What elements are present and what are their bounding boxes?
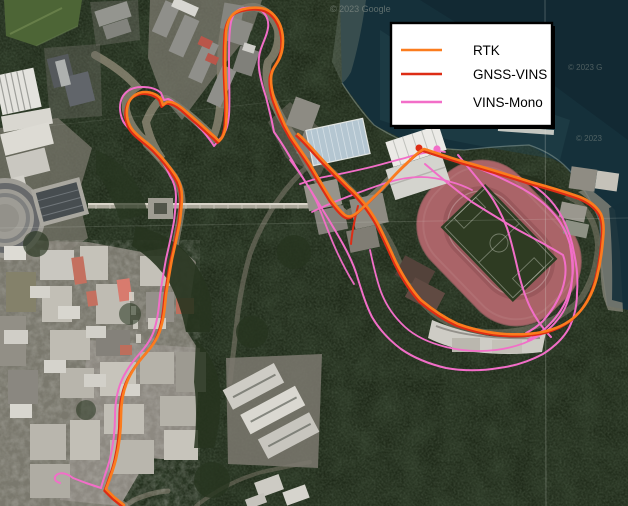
svg-text:GNSS-VINS: GNSS-VINS [473,67,547,82]
svg-text:© 2023 G: © 2023 G [568,63,602,72]
svg-text:VINS-Mono: VINS-Mono [473,95,543,110]
svg-text:RTK: RTK [473,43,500,58]
svg-text:© 2023: © 2023 [576,134,602,143]
svg-text:© 2023 Google: © 2023 Google [330,4,391,14]
